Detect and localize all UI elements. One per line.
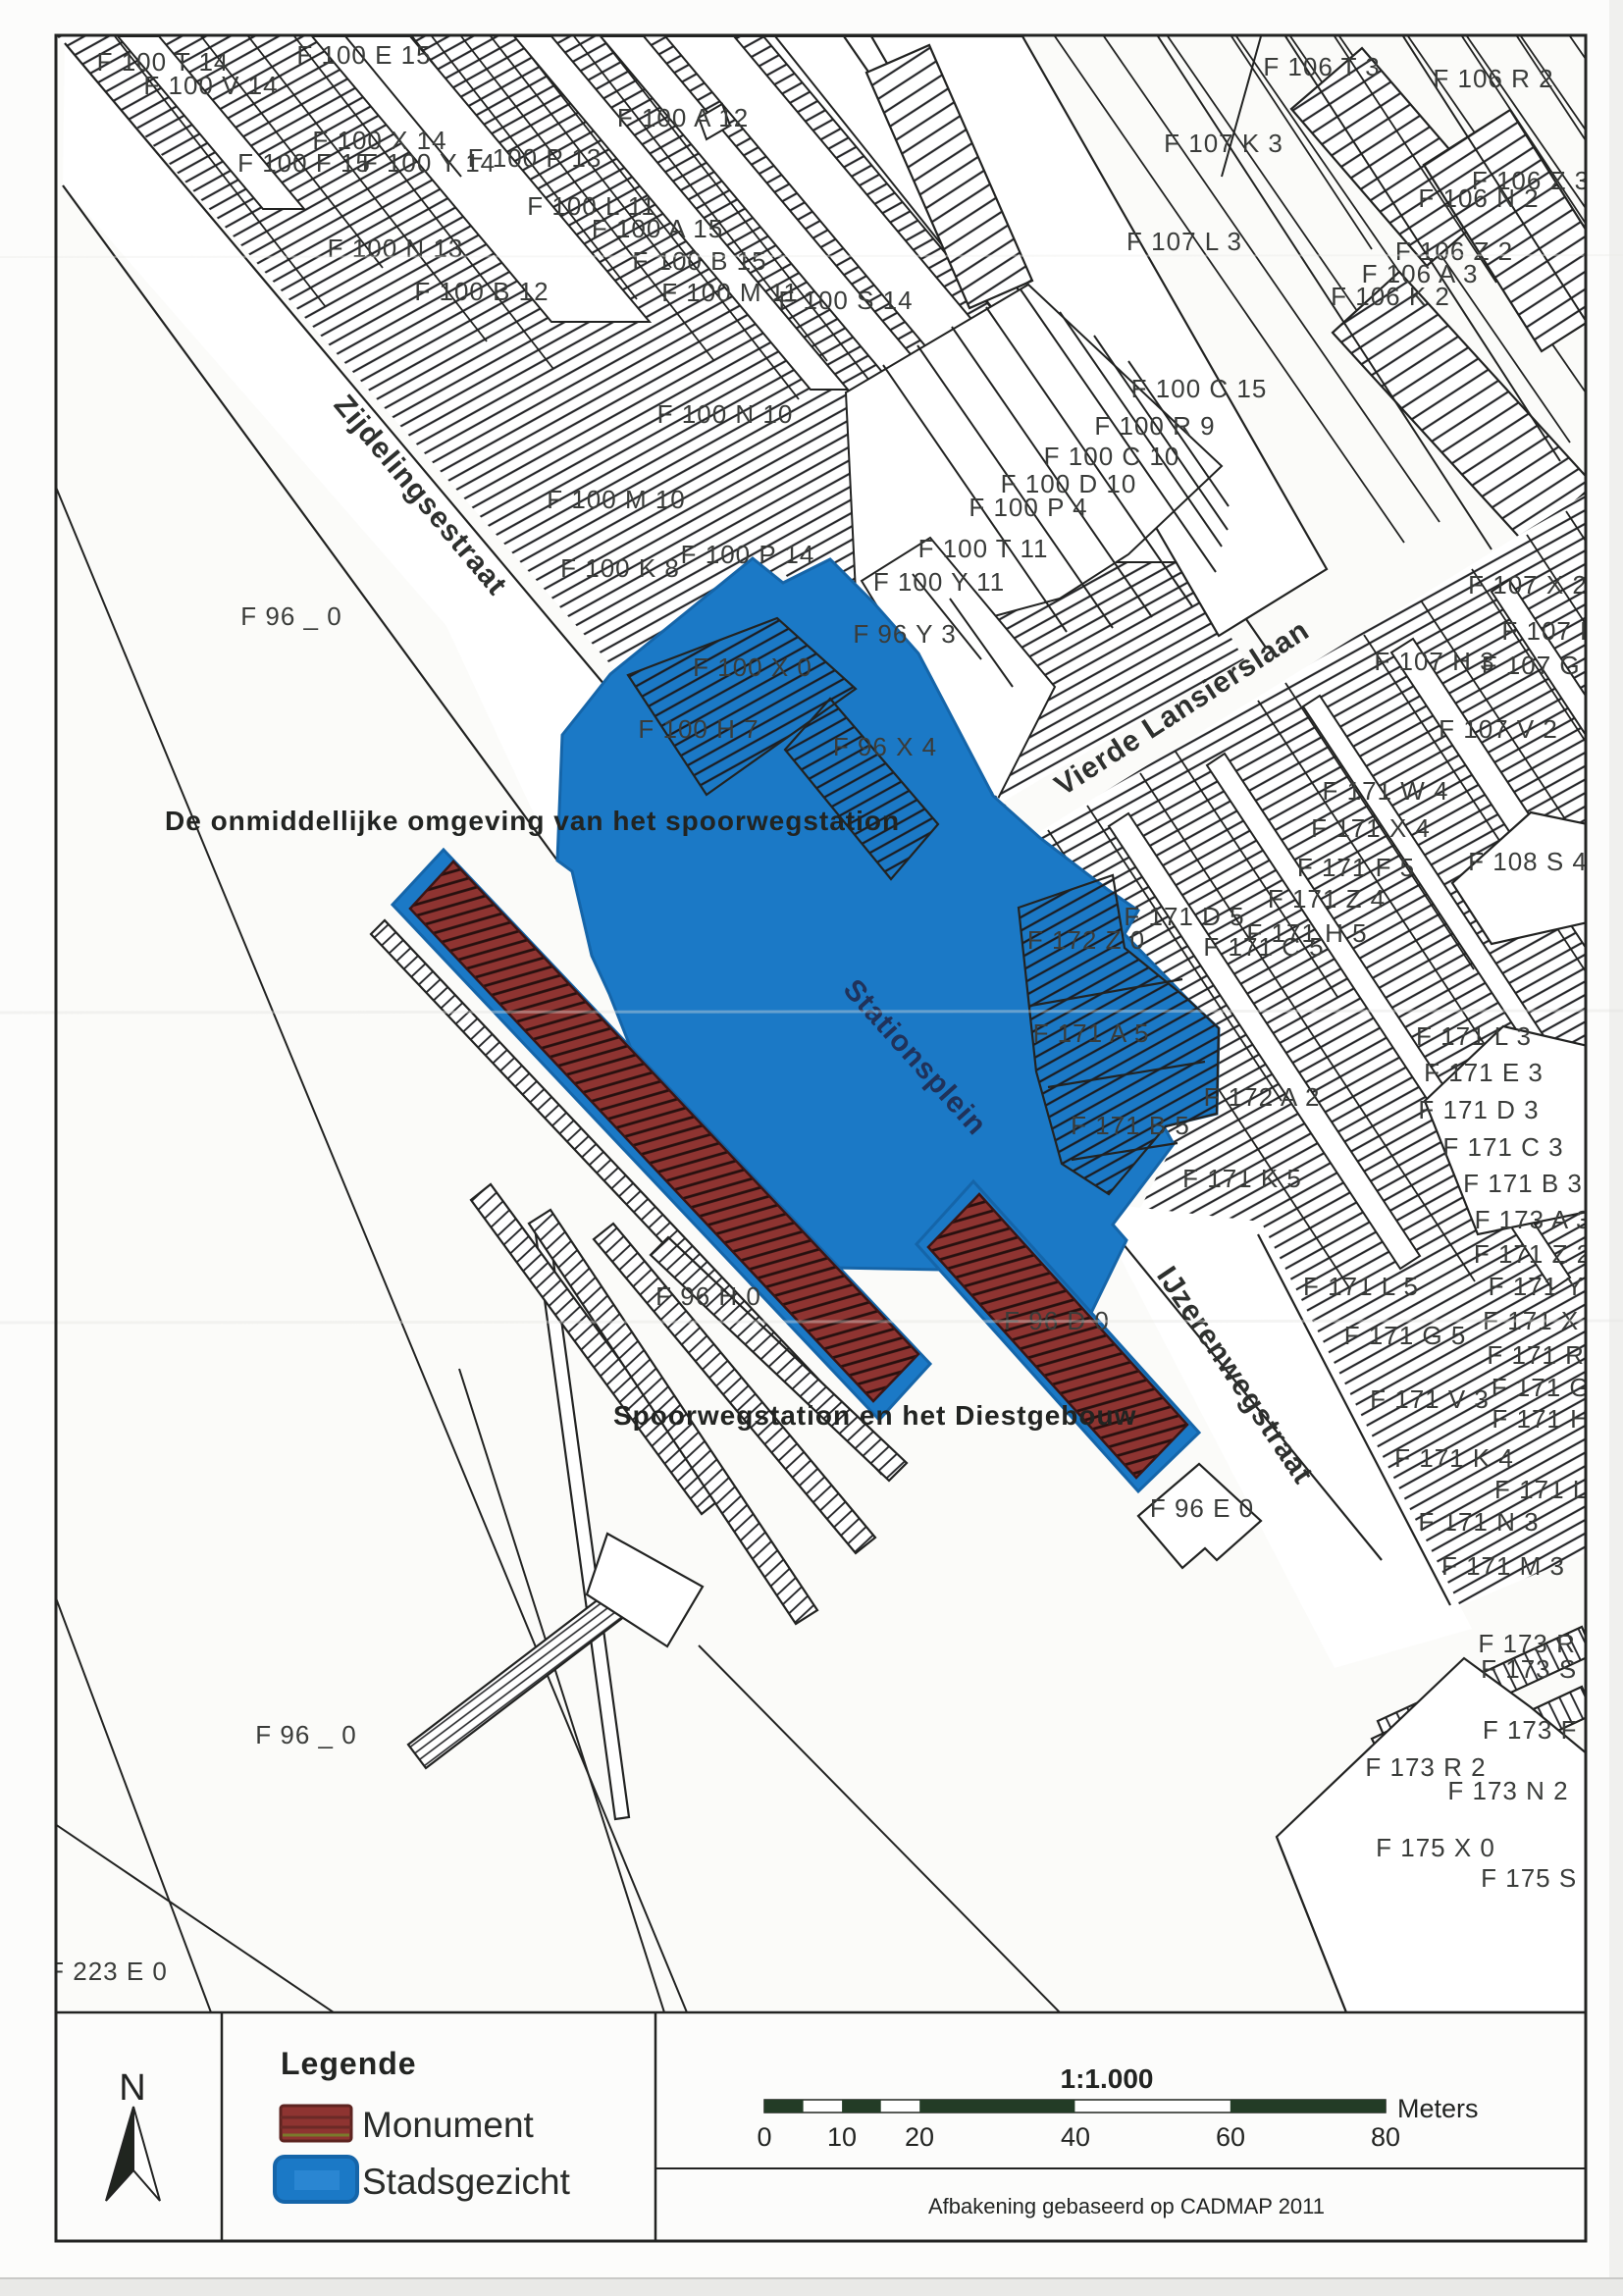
svg-text:F 100 Y 11: F 100 Y 11 <box>873 567 1005 597</box>
svg-text:F 108 S 4: F 108 S 4 <box>1468 847 1588 876</box>
svg-text:1:1.000: 1:1.000 <box>1061 2063 1154 2094</box>
svg-text:F 173 F 2: F 173 F 2 <box>1483 1715 1600 1745</box>
svg-text:F 173 S 2: F 173 S 2 <box>1481 1654 1600 1684</box>
svg-text:F 171 N 3: F 171 N 3 <box>1418 1507 1539 1537</box>
svg-text:F 106 R 2: F 106 R 2 <box>1433 64 1553 93</box>
svg-text:F 171 C 3: F 171 C 3 <box>1442 1132 1563 1162</box>
svg-text:F 107 X 2: F 107 X 2 <box>1468 570 1588 600</box>
svg-text:F 172 Z 0: F 172 Z 0 <box>1027 925 1145 955</box>
svg-text:F 100 A 15: F 100 A 15 <box>592 214 723 243</box>
svg-text:F 171 A 5: F 171 A 5 <box>1033 1018 1150 1048</box>
svg-text:F 171 L 3: F 171 L 3 <box>1416 1021 1532 1051</box>
svg-text:F 173 N 2: F 173 N 2 <box>1447 1776 1568 1805</box>
svg-text:F 223 E 0: F 223 E 0 <box>48 1957 168 1986</box>
svg-text:F 100 H 7: F 100 H 7 <box>638 714 759 744</box>
svg-text:N: N <box>119 2067 145 2109</box>
svg-text:20: 20 <box>905 2122 934 2152</box>
svg-text:F 100 B 15: F 100 B 15 <box>632 246 766 276</box>
svg-text:F 107 H 3: F 107 H 3 <box>1374 647 1494 676</box>
svg-text:F 96 Y 3: F 96 Y 3 <box>853 619 956 649</box>
svg-text:60: 60 <box>1216 2122 1245 2152</box>
svg-text:F 171 Z 4: F 171 Z 4 <box>1268 884 1386 913</box>
svg-text:40: 40 <box>1061 2122 1090 2152</box>
svg-text:F 175 X 0: F 175 X 0 <box>1376 1833 1495 1862</box>
svg-text:F 107 V 2: F 107 V 2 <box>1439 714 1558 744</box>
svg-text:F 100 A 12: F 100 A 12 <box>617 103 749 132</box>
svg-text:F 106 T 3: F 106 T 3 <box>1263 52 1380 81</box>
svg-text:F 100 M 10: F 100 M 10 <box>547 485 686 514</box>
svg-text:Monument: Monument <box>362 2105 535 2145</box>
svg-text:F 100 B 12: F 100 B 12 <box>414 277 549 306</box>
svg-text:10: 10 <box>827 2122 857 2152</box>
svg-text:F 100 N 10: F 100 N 10 <box>657 399 794 429</box>
svg-text:Afbakening gebaseerd op CADMAP: Afbakening gebaseerd op CADMAP 2011 <box>928 2194 1325 2218</box>
svg-text:F 173 A 3: F 173 A 3 <box>1475 1205 1592 1234</box>
svg-text:F 100 P 14: F 100 P 14 <box>681 540 815 569</box>
svg-text:F 96 E 0: F 96 E 0 <box>1150 1493 1254 1523</box>
svg-text:F 96 H 0: F 96 H 0 <box>655 1281 761 1311</box>
svg-text:Stadsgezicht: Stadsgezicht <box>362 2162 571 2202</box>
svg-text:F 100 P 4: F 100 P 4 <box>969 493 1087 522</box>
svg-text:F 171 G 5: F 171 G 5 <box>1344 1321 1467 1350</box>
svg-text:0: 0 <box>757 2122 771 2152</box>
svg-text:F 100 X 0: F 100 X 0 <box>693 652 812 682</box>
svg-text:F 100 F 15: F 100 F 15 <box>237 148 371 178</box>
svg-text:Meters: Meters <box>1397 2094 1479 2123</box>
svg-text:F 171 L 5: F 171 L 5 <box>1303 1272 1419 1301</box>
svg-text:F 96 X 4: F 96 X 4 <box>833 732 937 761</box>
svg-text:F 171 F 5: F 171 F 5 <box>1297 853 1415 882</box>
svg-text:F 171 K 5: F 171 K 5 <box>1182 1164 1302 1193</box>
svg-text:F 107 K 3: F 107 K 3 <box>1164 129 1283 158</box>
svg-text:Legende: Legende <box>281 2046 417 2081</box>
svg-text:80: 80 <box>1371 2122 1400 2152</box>
svg-text:F 96 _ 0: F 96 _ 0 <box>255 1720 356 1749</box>
svg-text:F 171 V 3: F 171 V 3 <box>1370 1384 1490 1414</box>
svg-text:F 100 C 10: F 100 C 10 <box>1044 442 1180 471</box>
svg-text:F 96 _ 0: F 96 _ 0 <box>240 601 341 631</box>
svg-text:F 100 V 14: F 100 V 14 <box>143 71 278 100</box>
svg-text:F 171 W 4: F 171 W 4 <box>1323 776 1449 806</box>
svg-text:F 171 B 3: F 171 B 3 <box>1463 1169 1583 1198</box>
svg-text:F 100 T 11: F 100 T 11 <box>918 534 1049 563</box>
svg-text:F 171 Z 2: F 171 Z 2 <box>1474 1239 1592 1269</box>
svg-text:F 107 L 3: F 107 L 3 <box>1126 227 1242 256</box>
svg-text:F 100 K 8: F 100 K 8 <box>560 553 680 583</box>
svg-text:F 100 E 15: F 100 E 15 <box>296 40 431 70</box>
svg-text:F 171 D 3: F 171 D 3 <box>1418 1095 1539 1124</box>
svg-text:F 171 M 3: F 171 M 3 <box>1441 1551 1565 1581</box>
svg-text:De onmiddellijke omgeving van: De onmiddellijke omgeving van het spoorw… <box>165 806 900 836</box>
svg-text:F 100 R 9: F 100 R 9 <box>1094 411 1215 441</box>
svg-text:F 171 B 5: F 171 B 5 <box>1071 1111 1190 1140</box>
svg-text:F 100 C 15: F 100 C 15 <box>1131 374 1268 403</box>
svg-text:F 106 N 2: F 106 N 2 <box>1418 183 1539 213</box>
svg-text:F 171 E 3: F 171 E 3 <box>1424 1058 1544 1087</box>
svg-text:F 106 K 2: F 106 K 2 <box>1331 282 1450 311</box>
svg-text:F 100 N 13: F 100 N 13 <box>328 234 464 263</box>
svg-text:F 175 S 0: F 175 S 0 <box>1481 1863 1600 1893</box>
svg-text:F 100 P 13: F 100 P 13 <box>468 143 602 173</box>
svg-text:F 172 A 2: F 172 A 2 <box>1204 1082 1321 1112</box>
svg-text:Spoorwegstation en het Diestge: Spoorwegstation en het Diestgebouw <box>613 1400 1136 1431</box>
svg-text:F 171 K 4: F 171 K 4 <box>1394 1443 1514 1473</box>
svg-text:F 171 C 5: F 171 C 5 <box>1203 932 1324 962</box>
svg-text:F 171 X 4: F 171 X 4 <box>1311 813 1431 843</box>
svg-text:F 100 S 14: F 100 S 14 <box>778 286 913 315</box>
